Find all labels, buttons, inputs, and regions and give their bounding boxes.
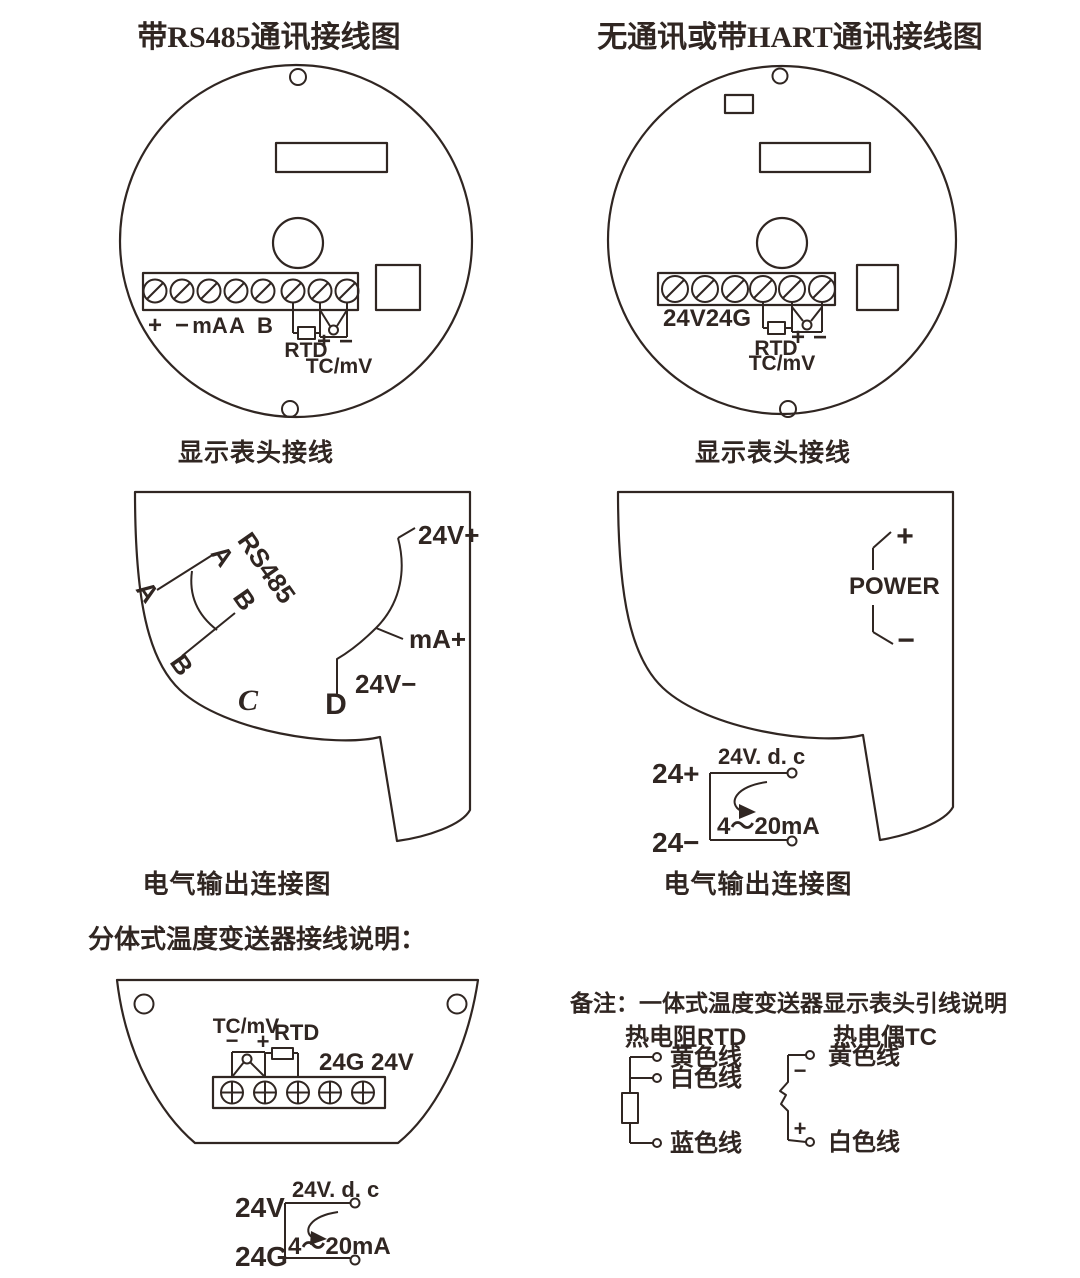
- head-outline-circle: [120, 65, 472, 417]
- side-connector-box: [857, 265, 898, 310]
- loop-current-label: 4～20mA: [717, 813, 820, 840]
- tc-plus-label: +: [794, 1116, 807, 1141]
- tc-element-symbol: [780, 1055, 788, 1140]
- left-mount-hole: [135, 995, 154, 1014]
- top-screw-hole: [290, 69, 306, 85]
- wire-b-inner-label: B: [227, 583, 262, 616]
- g-label: 24G: [235, 1241, 288, 1272]
- tc-plus-label: +: [257, 1029, 270, 1054]
- tc-white-terminal: [806, 1138, 814, 1146]
- bottom-screw-hole: [282, 401, 298, 417]
- display-window: [760, 143, 870, 172]
- rtd-yellow-terminal: [653, 1053, 661, 1061]
- power-label: POWER: [849, 573, 940, 600]
- rtd-white-terminal: [653, 1074, 661, 1082]
- title-hart-wiring: 无通讯或带HART通讯接线图: [588, 12, 992, 56]
- terminal-label-minus: −: [175, 312, 189, 339]
- tc-mv-label: TC/mV: [749, 352, 816, 375]
- terminal-c-label: C: [238, 684, 259, 717]
- terminal-screws: [662, 276, 835, 302]
- side-connector-box: [376, 265, 420, 310]
- rtd-wire-blue-label: 蓝色线: [670, 1129, 742, 1157]
- rtd-label: RTD: [274, 1020, 319, 1045]
- right-mount-hole: [448, 995, 467, 1014]
- rtd-resistor-symbol: [298, 327, 315, 339]
- supply-label: 24V. d. c: [718, 744, 805, 769]
- terminal-labels: + − mA A B: [148, 312, 273, 339]
- title-rs485-wiring: 带RS485通讯接线图: [104, 12, 434, 56]
- tc-minus-label: −: [813, 324, 827, 351]
- bus-arc: [191, 571, 217, 630]
- ma-plus-label: mA+: [409, 624, 466, 654]
- loop-terminal-plus: [788, 769, 797, 778]
- power-terminals-label: 24V24G: [663, 305, 751, 332]
- rs485-output-diagram: A A RS485 B B C D 24V+ mA+ 24V−: [110, 480, 480, 870]
- terminal-screws: [144, 280, 359, 303]
- power-terminals-label: 24G 24V: [319, 1049, 414, 1076]
- v-label: 24V: [235, 1192, 285, 1223]
- caption-electrical-output-right: 电气输出连接图: [608, 864, 908, 901]
- terminal-label-a: A: [229, 313, 245, 338]
- terminal-screws: [221, 1082, 374, 1104]
- split-transmitter-heading: 分体式温度变送器接线说明：: [88, 919, 426, 956]
- terminal-d-label: D: [325, 688, 347, 721]
- center-hole: [757, 218, 807, 268]
- terminal-label-ma: mA: [192, 313, 228, 338]
- tc-junction-symbol: [243, 1055, 252, 1064]
- terminal-strip: [143, 273, 358, 310]
- rtd-resistor-symbol: [622, 1093, 638, 1123]
- loop-plus-label: 24+: [652, 758, 700, 789]
- note-heading: 备注：一体式温度变送器显示表头引线说明: [570, 984, 1007, 1018]
- caption-electrical-output-left: 电气输出连接图: [87, 864, 387, 901]
- display-window: [276, 143, 387, 172]
- caption-display-head-right: 显示表头接线: [623, 433, 923, 469]
- loop-current-label: 4～20mA: [288, 1233, 391, 1260]
- split-transmitter-head-diagram: TC/mV − + RTD 24G 24V: [100, 970, 500, 1160]
- hart-output-diagram: + − POWER 24V. d. c 24+ 4～20mA 24−: [600, 480, 970, 870]
- terminal-label-plus: +: [148, 312, 162, 339]
- split-loop-diagram: 24V. d. c 24V 4～20mA 24G: [200, 1170, 500, 1278]
- rtd-wire-white-label: 白色线: [670, 1064, 742, 1092]
- tc-minus-label: −: [226, 1028, 239, 1053]
- caption-display-head-left: 显示表头接线: [106, 433, 406, 469]
- top-screw-hole: [773, 69, 788, 84]
- v-plus-label: 24V+: [418, 520, 479, 550]
- terminal-label-b: B: [257, 313, 273, 338]
- tc-mv-label: TC/mV: [306, 355, 373, 378]
- lead-wire-diagrams: 黄色线 白色线 蓝色线 − + 黄色线 白色线: [600, 1040, 1020, 1165]
- wire-a: [157, 554, 214, 590]
- rtd-resistor-symbol: [272, 1048, 293, 1059]
- rtd-resistor-symbol: [768, 322, 785, 334]
- tc-minus-label: −: [794, 1058, 807, 1083]
- supply-label: 24V. d. c: [292, 1177, 379, 1202]
- power-minus-label: −: [897, 624, 915, 657]
- ma-plus-lead: [376, 628, 403, 639]
- tc-yellow-terminal: [806, 1051, 814, 1059]
- power-plus-label: +: [896, 520, 914, 553]
- center-hole: [273, 218, 323, 268]
- loop-minus-label: 24−: [652, 827, 700, 858]
- rtd-blue-terminal: [653, 1139, 661, 1147]
- tc-wire-yellow-label: 黄色线: [828, 1042, 900, 1070]
- rs485-terminal-head-diagram: + − mA A B + − RTD TC/mV: [110, 60, 475, 420]
- tc-minus-label: −: [339, 328, 353, 355]
- hart-terminal-head-diagram: 24V24G + − RTD TC/mV: [600, 60, 965, 420]
- rtd-lead-diagram: [622, 1053, 661, 1147]
- wiring-diagram-page: 带RS485通讯接线图 无通讯或带HART通讯接线图 + − mA A B: [0, 0, 1080, 1278]
- tc-wire-white-label: 白色线: [828, 1128, 900, 1156]
- v-plus-lead: [398, 528, 415, 538]
- small-window: [725, 95, 753, 113]
- wire-a-outer-label: A: [130, 575, 165, 608]
- v-minus-label: 24V−: [355, 669, 416, 699]
